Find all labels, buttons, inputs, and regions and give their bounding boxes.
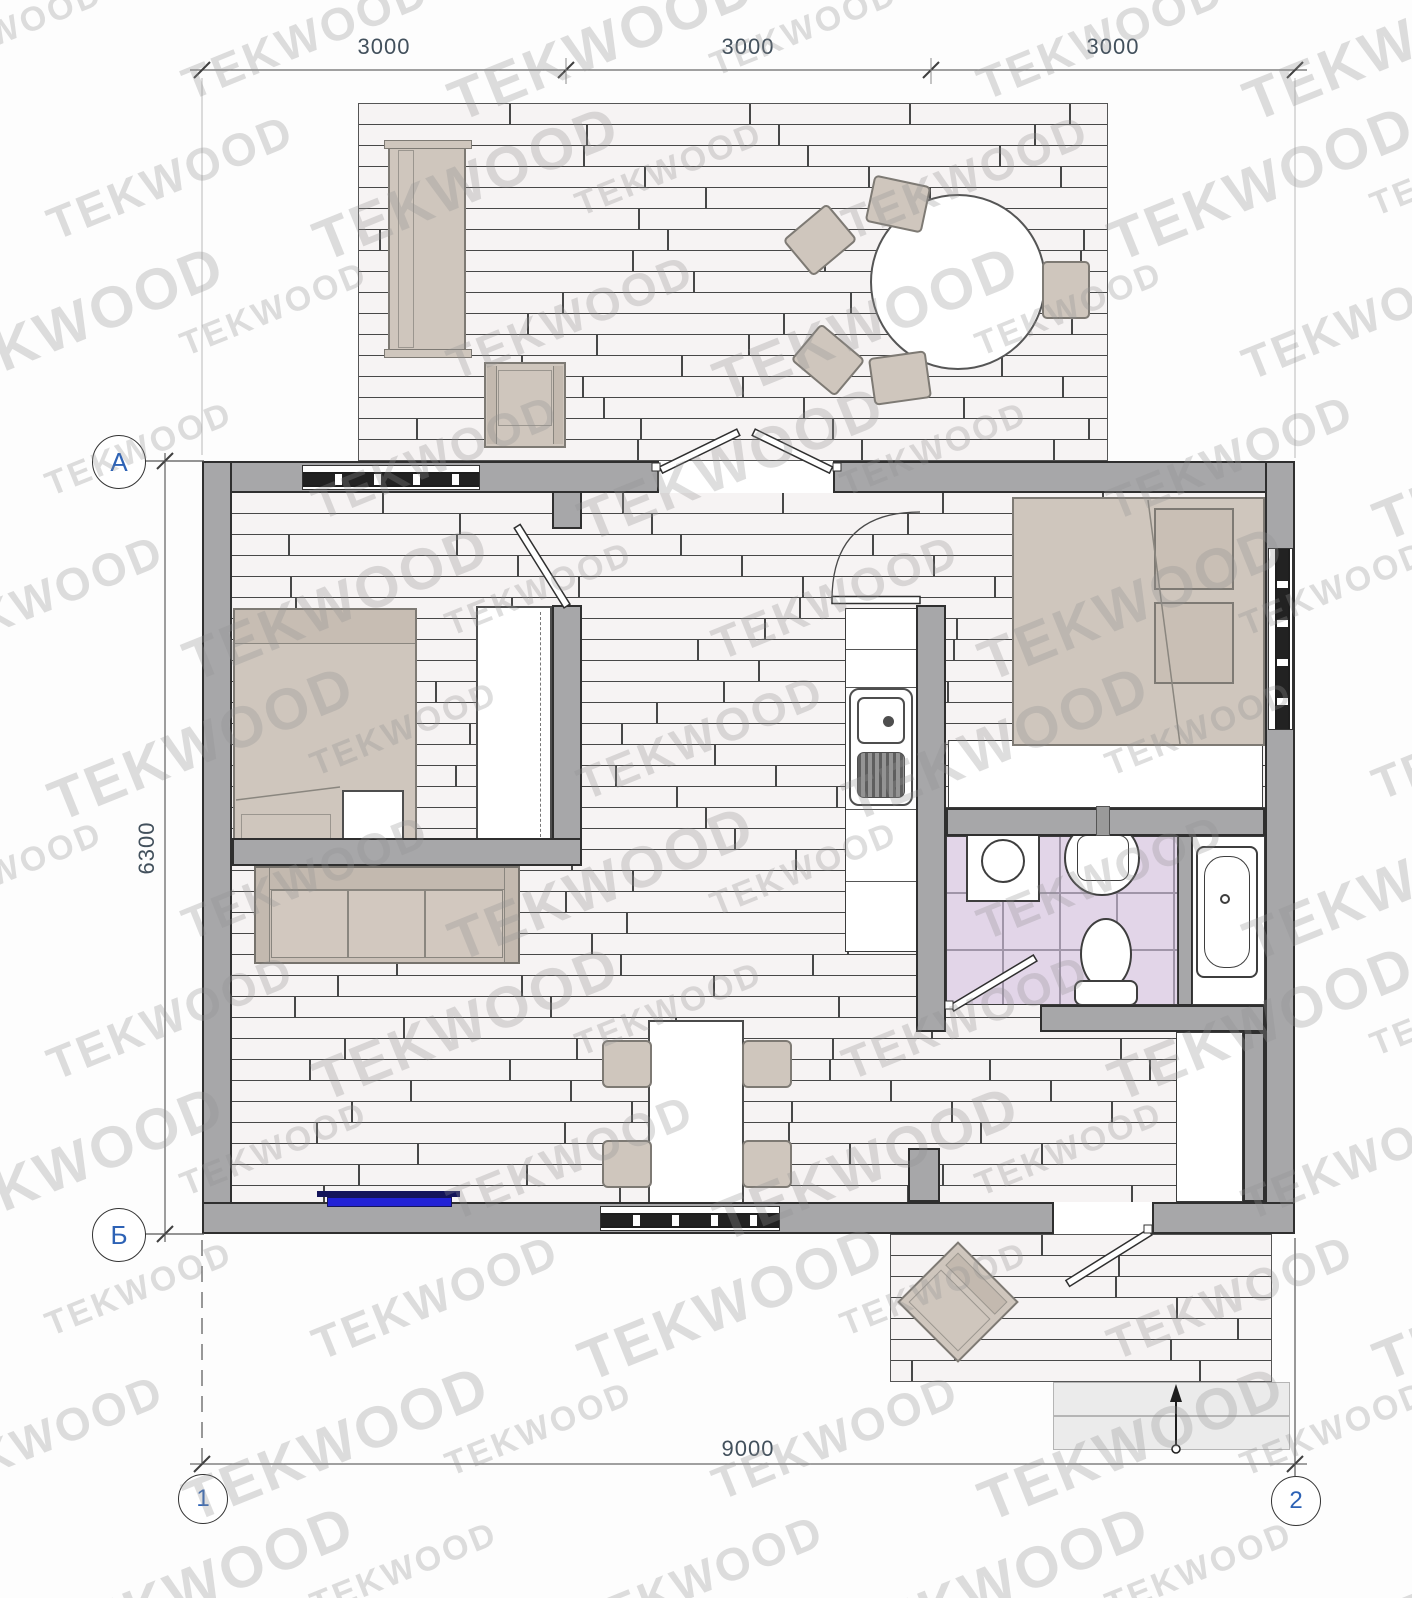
watermark-text: TEKWOOD: [834, 1492, 1159, 1598]
wall-bedroom1-right: [552, 605, 582, 866]
counter-divider: [846, 809, 916, 810]
window-living-top: [302, 465, 480, 490]
wall-hall-right: [1243, 1032, 1265, 1202]
sofa-arm-right: [504, 868, 518, 962]
sofa-cushion: [425, 890, 503, 958]
radiator-body: [327, 1197, 452, 1207]
watermark-text: TEKWOOD: [304, 1223, 566, 1371]
watermark-text: TEKWOOD: [1099, 92, 1412, 275]
bench-slats: [398, 150, 414, 348]
dining-table: [648, 1020, 744, 1204]
dim-label-top-3: 3000: [1053, 34, 1173, 60]
wall-bathroom-bottom: [1040, 1005, 1265, 1032]
axis-label-B: Б: [110, 1220, 127, 1251]
watermark-text: TEKWOOD: [1364, 663, 1412, 811]
watermark-text: TEKWOOD: [175, 254, 374, 365]
wardrobe-rail: [540, 612, 541, 842]
watermark-text: TEKWOOD: [1234, 243, 1412, 391]
bed-pillow-band: [235, 610, 415, 644]
watermark-text: TEKWOOD: [1364, 1212, 1412, 1395]
counter-divider: [846, 881, 916, 882]
watermark-text: TEKWOOD: [0, 814, 109, 925]
dim-label-top-2: 3000: [688, 34, 808, 60]
armchair-seat: [498, 370, 552, 426]
wall-exterior-left: [202, 461, 232, 1234]
terrace-bench: [388, 140, 466, 358]
dim-label-left: 6300: [134, 798, 162, 898]
counter-divider: [846, 649, 916, 650]
bathtub-drain-icon: [1220, 894, 1230, 904]
armchair-arm-left: [487, 366, 497, 444]
axis-marker-1: 1: [178, 1474, 228, 1524]
entry-step: [1053, 1416, 1290, 1450]
watermark-text: TEKWOOD: [1100, 1514, 1299, 1598]
watermark-text: TEKWOOD: [0, 0, 109, 85]
dim-label-bottom: 9000: [688, 1436, 808, 1462]
axis-label-1: 1: [196, 1485, 209, 1513]
sofa: [254, 866, 520, 964]
wardrobe: [476, 606, 552, 848]
bathtub: [1196, 846, 1258, 978]
wall-kitchen-corridor: [916, 605, 946, 1032]
axis-label-A: А: [110, 447, 127, 478]
entry-step: [1053, 1382, 1290, 1416]
watermark-text: TEKWOOD: [569, 1503, 831, 1598]
exit-door-opening: [1052, 1202, 1154, 1234]
window-glazing-icon: [1275, 549, 1290, 729]
terrace-chair: [868, 350, 932, 406]
entrance-door-opening: [657, 461, 835, 493]
dining-chair: [602, 1140, 652, 1188]
watermark-text: TEKWOOD: [0, 523, 172, 671]
dining-chair: [602, 1040, 652, 1088]
bench-cap-bottom: [384, 349, 472, 358]
axis-label-2: 2: [1289, 1487, 1302, 1515]
sofa-arm-left: [256, 868, 270, 962]
watermark-text: TEKWOOD: [0, 232, 235, 415]
bench-cap-top: [384, 140, 472, 149]
armchair-arm-right: [553, 366, 563, 444]
sofa-cushion: [348, 890, 425, 958]
wall-bedroom1-door-stub: [552, 491, 582, 529]
window-dining-bottom: [600, 1206, 780, 1231]
dining-chair: [742, 1140, 792, 1188]
window-glazing-icon: [601, 1213, 779, 1228]
basin-faucet-icon: [1096, 806, 1110, 836]
window-glazing-icon: [303, 472, 479, 487]
dim-label-top-1: 3000: [324, 34, 444, 60]
axis-marker-A: А: [92, 435, 146, 489]
bed-double: [1012, 497, 1265, 746]
watermark-text: TEKWOOD: [0, 1363, 172, 1511]
toilet-base: [1074, 980, 1138, 1006]
terrace-armchair: [484, 362, 566, 448]
watermark-text: TEKWOOD: [569, 1212, 894, 1395]
terrace-chair: [1042, 261, 1090, 319]
sofa-back: [270, 868, 504, 890]
washing-machine-drum-icon: [981, 839, 1025, 883]
bathtub-inner: [1204, 856, 1250, 968]
wall-bedroom1-bottom: [232, 838, 582, 866]
axis-marker-B: Б: [92, 1208, 146, 1262]
sink-faucet-icon: [883, 716, 894, 727]
dining-chair: [742, 1040, 792, 1088]
wall-bathtub-divider: [1178, 836, 1192, 1005]
window-bedroom2-right: [1268, 548, 1293, 730]
watermark-text: TEKWOOD: [305, 1514, 504, 1598]
floor-plan-canvas: 3000 3000 3000 6300 9000 А Б 1 2 TEKWOOD…: [0, 0, 1412, 1598]
watermark-text: TEKWOOD: [1364, 372, 1412, 555]
sofa-cushion: [271, 890, 348, 958]
watermark-text: TEKWOOD: [440, 1374, 639, 1485]
sink-drainer: [857, 752, 905, 798]
watermark-text: TEKWOOD: [1234, 0, 1412, 135]
watermark-text: TEKWOOD: [1365, 114, 1412, 225]
bed-pillow: [1154, 602, 1234, 684]
bedroom2-closet: [948, 740, 1263, 808]
watermark-text: TEKWOOD: [39, 103, 301, 251]
basin-bowl: [1077, 835, 1129, 881]
watermark-text: TEKWOOD: [1365, 954, 1412, 1065]
sink-bowl: [857, 697, 905, 744]
nightstand: [342, 790, 404, 842]
kitchen-sink: [849, 688, 913, 806]
bed-pillow: [1154, 508, 1234, 590]
wall-hall-stub: [908, 1148, 940, 1202]
watermark-text: TEKWOOD: [1364, 1503, 1412, 1598]
axis-marker-2: 2: [1271, 1476, 1321, 1526]
hall-closet: [1176, 1032, 1243, 1202]
